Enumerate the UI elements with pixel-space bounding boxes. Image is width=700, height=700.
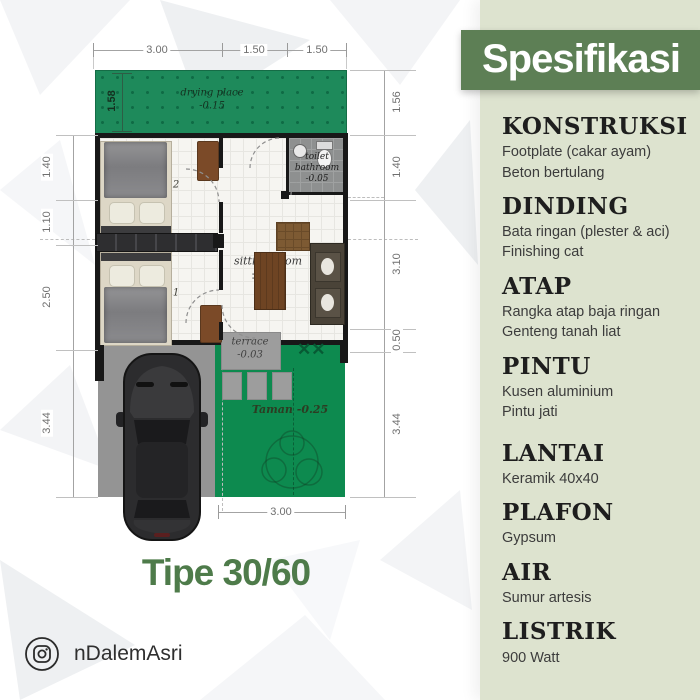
extension-line (346, 57, 347, 69)
dimension-tick (56, 135, 98, 136)
spec-item-title: PINTU (502, 354, 690, 379)
spec-item-title: DINDING (502, 194, 690, 219)
spec-item-line: Kusen aluminium (502, 382, 690, 402)
spec-item-line: Beton bertulang (502, 163, 690, 183)
stepping-stone (247, 372, 267, 400)
spec-item-line: Gypsum (502, 528, 690, 548)
extension-line (93, 57, 94, 69)
spec-item: KONSTRUKSI Footplate (cakar ayam) Beton … (502, 114, 690, 183)
dimension-label: 0.50 (391, 326, 403, 353)
door-arcs (95, 133, 348, 345)
spec-item: LISTRIK 900 Watt (502, 619, 690, 668)
dimension-label: 1.40 (41, 153, 53, 180)
dimension-tick (112, 131, 132, 132)
dimension-label: 1.50 (240, 44, 267, 56)
dimension-tick (222, 43, 223, 57)
garden-label: Taman -0.25 (252, 403, 328, 417)
dimension-tick (345, 505, 346, 519)
spec-item-line: Genteng tanah liat (502, 322, 690, 342)
spec-item-title: AIR (502, 560, 690, 585)
instagram-badge: nDalemAsri (24, 636, 183, 672)
tree-icon (252, 422, 332, 502)
spec-item-line: Finishing cat (502, 242, 690, 262)
dimension-tick (112, 73, 132, 74)
spec-list: KONSTRUKSI Footplate (cakar ayam) Beton … (502, 114, 690, 679)
dimension-label: 2.50 (41, 283, 53, 310)
axis-dash (348, 239, 418, 240)
dimension-tick (56, 497, 98, 498)
dimension-line (73, 135, 74, 497)
wall-segment (340, 345, 348, 363)
instagram-handle: nDalemAsri (74, 642, 183, 666)
spec-item-title: KONSTRUKSI (502, 114, 690, 139)
dimension-label: 3.00 (267, 506, 294, 518)
spec-item-line: Footplate (cakar ayam) (502, 142, 690, 162)
dimension-label: 3.10 (391, 250, 403, 277)
spec-item: DINDING Bata ringan (plester & aci) Fini… (502, 194, 690, 263)
poster-canvas: drying place -0.15 bedroom 2 ±0.00 bedro… (0, 0, 700, 700)
spec-item-title: LANTAI (502, 441, 690, 466)
spec-item-title: LISTRIK (502, 619, 690, 644)
dimension-tick (350, 497, 416, 498)
spec-item: AIR Sumur artesis (502, 560, 690, 609)
spec-item-line: Pintu jati (502, 402, 690, 422)
stepping-stone (272, 372, 292, 400)
dimension-label: 1.56 (391, 88, 403, 115)
spec-header-title: Spesifikasi (461, 30, 700, 88)
spec-item-line: 900 Watt (502, 648, 690, 668)
spec-item: PLAFON Gypsum (502, 500, 690, 549)
spec-item: ATAP Rangka atap baja ringan Genteng tan… (502, 274, 690, 343)
axis-dash (40, 239, 95, 240)
spec-item-line: Sumur artesis (502, 588, 690, 608)
dimension-tick (350, 70, 416, 71)
dimension-tick (218, 505, 219, 519)
dimension-label: 3.44 (41, 409, 53, 436)
spec-item-line: Bata ringan (plester & aci) (502, 222, 690, 242)
instagram-icon (24, 636, 60, 672)
dimension-label: 3.44 (391, 410, 403, 437)
dimension-tick (287, 43, 288, 57)
dimension-tick (350, 352, 416, 353)
dimension-tick (56, 200, 98, 201)
plan-type-title: Tipe 30/60 (126, 552, 326, 594)
car-illustration (116, 352, 208, 544)
dimension-label: 1.10 (41, 208, 53, 235)
axis-dash (348, 197, 384, 198)
dimension-tick (346, 43, 347, 57)
spec-item-title: ATAP (502, 274, 690, 299)
spec-item: PINTU Kusen aluminium Pintu jati (502, 354, 690, 423)
dimension-label: 1.50 (303, 44, 330, 56)
spec-item-line: Rangka atap baja ringan (502, 302, 690, 322)
spec-item: LANTAI Keramik 40x40 (502, 441, 690, 490)
dimension-label: 1.58 (106, 87, 118, 114)
dimension-tick (350, 200, 416, 201)
spec-item-line: Keramik 40x40 (502, 469, 690, 489)
dimension-label: 3.00 (143, 44, 170, 56)
dimension-tick (93, 43, 94, 57)
stepping-stone (222, 372, 242, 400)
dimension-tick (350, 329, 416, 330)
dimension-tick (350, 135, 416, 136)
dimension-tick (56, 245, 98, 246)
drying-place-label: drying place -0.15 (180, 88, 243, 113)
dimension-tick (56, 350, 98, 351)
dimension-line (122, 73, 123, 131)
spec-item-title: PLAFON (502, 500, 690, 525)
spec-header-banner: Spesifikasi (461, 30, 700, 90)
dimension-label: 1.40 (391, 153, 403, 180)
